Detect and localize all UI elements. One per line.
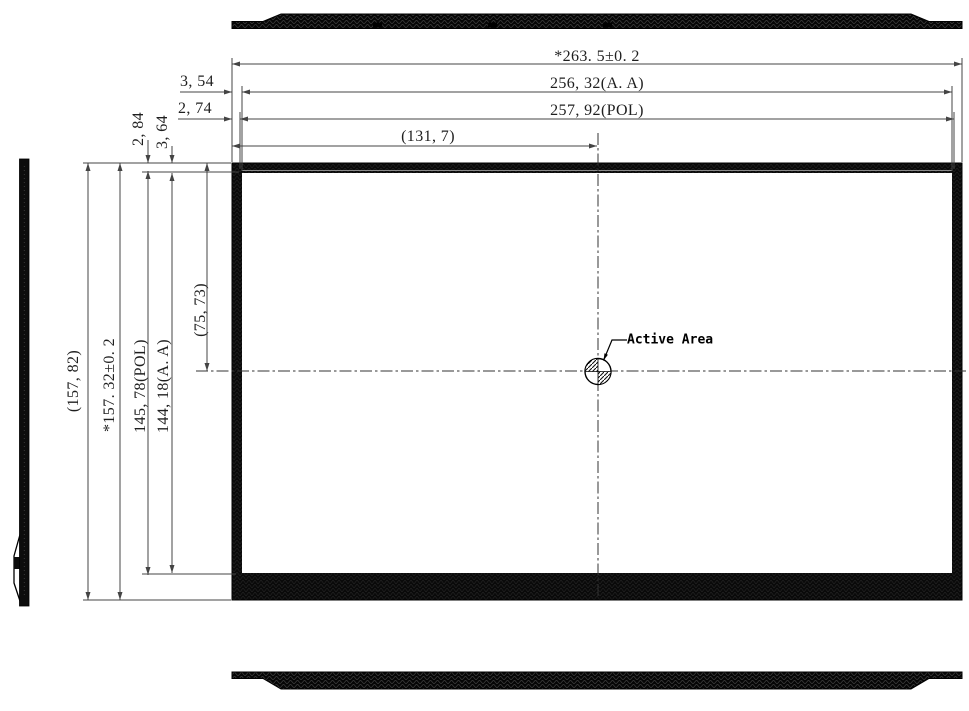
top-profile-notch xyxy=(373,23,382,28)
left-profile-view xyxy=(14,159,30,606)
dim-label-pol-height: 145, 78(POL) xyxy=(132,339,150,433)
dim-label-center-y: (75, 73) xyxy=(192,283,210,337)
dim-label-pol-width: 257, 92(POL) xyxy=(550,102,644,120)
dim-label-overall-width: *263. 5±0. 2 xyxy=(554,48,640,66)
dim-label-edge-aa-x: 3, 54 xyxy=(180,73,214,91)
top-profile-notch xyxy=(488,23,497,28)
dim-label-overall-height: *157. 32±0. 2 xyxy=(101,338,119,432)
dim-label-edge-pol-x: 2, 74 xyxy=(178,100,212,118)
top-profile-view xyxy=(232,14,962,29)
bottom-profile-view xyxy=(232,672,962,689)
engineering-drawing: *263. 5±0. 2 256, 32(A. A) 257, 92(POL) … xyxy=(0,0,969,711)
dim-label-overall-height-ref: (157, 82) xyxy=(65,350,83,412)
dim-label-center-x: (131, 7) xyxy=(401,128,455,146)
dim-label-edge-pol-y: 2, 84 xyxy=(130,112,148,146)
dim-label-aa-height: 144, 18(A. A) xyxy=(155,339,173,433)
dim-label-edge-aa-y: 3, 64 xyxy=(154,115,172,149)
active-area-label: Active Area xyxy=(627,333,713,348)
top-profile-notch xyxy=(603,23,612,28)
dim-label-aa-width: 256, 32(A. A) xyxy=(550,75,644,93)
